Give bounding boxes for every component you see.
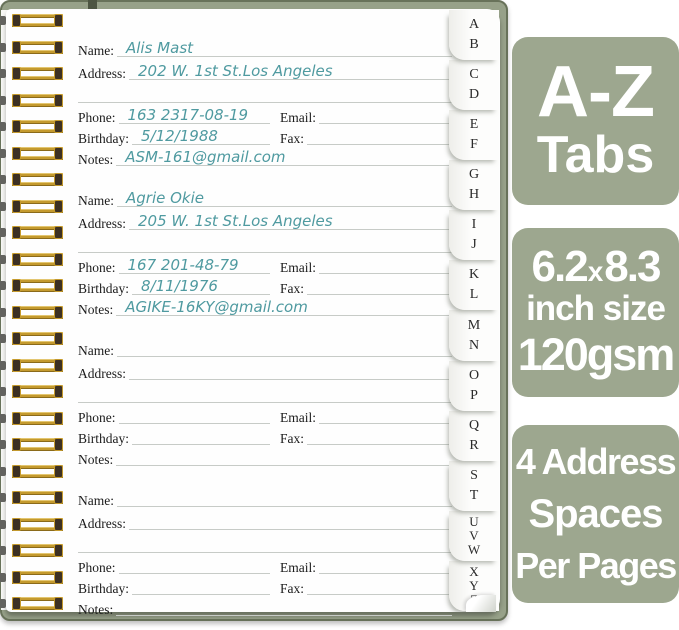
phone-line — [119, 403, 270, 424]
phone-label: Phone: — [78, 261, 119, 275]
binding-coil-end — [0, 175, 6, 184]
name-line — [117, 334, 452, 357]
binding-coil-end — [0, 334, 6, 343]
phone-value: 167 201-48-79 — [128, 257, 239, 274]
binding-coil — [12, 120, 63, 133]
notes-label: Notes: — [78, 453, 116, 467]
notes-row: Notes: AGIKE-16KY@gmail.com — [78, 295, 452, 316]
binding-coil — [12, 173, 63, 186]
separator-line — [78, 79, 452, 103]
tab-letter: U — [469, 515, 478, 528]
tab-letter: B — [469, 38, 478, 52]
badge-text: Spaces — [528, 494, 662, 534]
binding-coil-end — [0, 69, 6, 78]
binding-coil-end — [0, 16, 6, 25]
notes-line: ASM-161@gmail.com — [116, 144, 452, 166]
binding-coil-end — [0, 202, 6, 211]
phone-field: Phone: 167 201-48-79 — [78, 254, 270, 274]
notes-value: AGIKE-16KY@gmail.com — [125, 299, 308, 316]
binding-coil — [12, 226, 63, 239]
tab-letter: T — [470, 489, 479, 503]
tab-letter: F — [470, 138, 478, 152]
birthday-line — [132, 574, 270, 595]
name-row: Name: Agrie Okie — [78, 185, 452, 207]
notes-line — [116, 594, 452, 616]
name-row: Name: — [78, 485, 452, 507]
birthday-label: Birthday: — [78, 282, 132, 296]
binding-coil-end — [0, 361, 6, 370]
spaces-badge: 4 Address Spaces Per Pages — [512, 425, 679, 603]
size-badge: 6.2x8.3 inch size 120gsm — [512, 228, 679, 397]
fax-line — [307, 424, 452, 445]
az-tabs-badge: A-Z Tabs — [512, 37, 679, 205]
notes-row: Notes: ASM-161@gmail.com — [78, 145, 452, 166]
address-entry: Name: Address: Phone: Email: — [78, 335, 452, 485]
email-label: Email: — [280, 561, 319, 575]
fax-field: Fax: — [280, 125, 452, 145]
address-label: Address: — [78, 67, 129, 81]
times-symbol: x — [588, 258, 604, 286]
binding-coil — [12, 412, 63, 425]
binding-coil — [12, 306, 63, 319]
notes-line — [116, 444, 452, 466]
binding-coil-end — [0, 440, 6, 449]
phone-email-row: Phone: 163 2317-08-19 Email: — [78, 104, 452, 124]
fax-line — [307, 274, 452, 295]
fax-label: Fax: — [280, 282, 307, 296]
separator-line — [78, 529, 452, 553]
address-label: Address: — [78, 367, 129, 381]
fax-line — [307, 124, 452, 145]
tab-letter: W — [468, 543, 480, 556]
wire-left-marks — [0, 16, 6, 608]
email-label: Email: — [280, 261, 319, 275]
address-line — [129, 356, 452, 380]
birthday-label: Birthday: — [78, 132, 132, 146]
birthday-fax-row: Birthday: Fax: — [78, 425, 452, 445]
binding-coil-end — [0, 308, 6, 317]
birthday-field: Birthday: — [78, 425, 270, 445]
separator-row — [78, 230, 452, 253]
badge-text: Per Pages — [515, 548, 676, 584]
separator-line — [78, 379, 452, 403]
tab-letter: Q — [469, 419, 479, 433]
name-line — [117, 484, 452, 507]
email-field: Email: — [280, 254, 452, 274]
phone-line: 167 201-48-79 — [119, 253, 270, 274]
entries-area: Name: Alis Mast Address: 202 W. 1st St.L… — [78, 35, 452, 630]
address-row: Address: — [78, 357, 452, 380]
email-line — [319, 403, 452, 424]
badge-text: 4 Address — [516, 444, 675, 480]
name-line: Alis Mast — [117, 34, 452, 57]
separator-line — [78, 229, 452, 253]
email-line — [319, 553, 452, 574]
badge-text: inch size — [526, 291, 665, 328]
separator-row — [78, 80, 452, 103]
binding-coil — [12, 332, 63, 345]
binding-coil — [12, 359, 63, 372]
size-number: 6.2 — [532, 245, 587, 289]
notes-label: Notes: — [78, 603, 116, 617]
wire-binding — [12, 14, 63, 610]
binding-coil-end — [0, 228, 6, 237]
tab-st[interactable]: ST — [449, 461, 499, 511]
phone-field: Phone: 163 2317-08-19 — [78, 104, 270, 124]
binding-coil — [12, 200, 63, 213]
phone-line: 163 2317-08-19 — [119, 103, 270, 124]
fax-label: Fax: — [280, 132, 307, 146]
birthday-fax-row: Birthday: Fax: — [78, 575, 452, 595]
tab-letter: E — [470, 118, 479, 132]
tab-uvw[interactable]: UVW — [449, 511, 499, 561]
binding-coil-end — [0, 546, 6, 555]
tab-letter: D — [469, 88, 479, 102]
binding-coil-end — [0, 387, 6, 396]
fax-label: Fax: — [280, 582, 307, 596]
binding-coil — [12, 14, 63, 27]
binding-coil-end — [0, 467, 6, 476]
tab-letter: P — [470, 389, 478, 403]
email-label: Email: — [280, 111, 319, 125]
address-book-page: Name: Alis Mast Address: 202 W. 1st St.L… — [6, 9, 500, 612]
address-entry: Name: Address: Phone: Email: — [78, 485, 452, 630]
address-row: Address: 202 W. 1st St.Los Angeles — [78, 57, 452, 80]
name-value: Alis Mast — [126, 40, 193, 57]
index-tab-column: AB CD EF GH IJ KL MN OP QR ST UVW XYZ — [449, 10, 499, 611]
tab-letter: G — [469, 168, 479, 182]
binding-coil — [12, 147, 63, 160]
email-field: Email: — [280, 404, 452, 424]
size-number: 8.3 — [604, 245, 659, 289]
binding-coil — [12, 465, 63, 478]
binding-coil-end — [0, 414, 6, 423]
fax-field: Fax: — [280, 575, 452, 595]
phone-value: 163 2317-08-19 — [128, 107, 249, 124]
binding-coil-end — [0, 122, 6, 131]
notes-line: AGIKE-16KY@gmail.com — [116, 294, 452, 316]
address-value: 205 W. 1st St.Los Angeles — [138, 213, 333, 230]
notes-row: Notes: — [78, 595, 452, 616]
binding-coil-end — [0, 255, 6, 264]
phone-email-row: Phone: Email: — [78, 404, 452, 424]
tab-cd[interactable]: CD — [449, 60, 499, 110]
address-entry: Name: Alis Mast Address: 202 W. 1st St.L… — [78, 35, 452, 185]
name-row: Name: Alis Mast — [78, 35, 452, 57]
tab-letter: C — [469, 68, 478, 82]
address-line — [129, 506, 452, 530]
name-value: Agrie Okie — [126, 190, 204, 207]
binding-coil-end — [0, 493, 6, 502]
address-entry: Name: Agrie Okie Address: 205 W. 1st St.… — [78, 185, 452, 335]
fax-field: Fax: — [280, 275, 452, 295]
fax-line — [307, 574, 452, 595]
phone-label: Phone: — [78, 411, 119, 425]
binding-coil — [12, 544, 63, 557]
name-label: Name: — [78, 494, 117, 508]
binding-coil-end — [0, 149, 6, 158]
name-label: Name: — [78, 194, 117, 208]
tab-letter: I — [472, 218, 477, 232]
tab-kl[interactable]: KL — [449, 260, 499, 310]
badge-text: 6.2x8.3 — [532, 245, 660, 289]
binding-coil-end — [0, 520, 6, 529]
binding-coil — [12, 438, 63, 451]
notes-row: Notes: — [78, 445, 452, 466]
birthday-value: 8/11/1976 — [141, 278, 218, 295]
tab-letter: J — [471, 238, 476, 252]
binding-coil-end — [0, 573, 6, 582]
name-row: Name: — [78, 335, 452, 357]
phone-email-row: Phone: 167 201-48-79 Email: — [78, 254, 452, 274]
badge-text: Tabs — [537, 131, 655, 180]
product-image: Name: Alis Mast Address: 202 W. 1st St.L… — [0, 0, 679, 630]
tab-letter: X — [469, 565, 478, 578]
name-label: Name: — [78, 44, 117, 58]
badge-text: A-Z — [537, 62, 654, 123]
email-label: Email: — [280, 411, 319, 425]
tab-letter: N — [469, 339, 479, 353]
email-line — [319, 103, 452, 124]
separator-row — [78, 530, 452, 553]
phone-label: Phone: — [78, 111, 119, 125]
birthday-label: Birthday: — [78, 432, 132, 446]
email-line — [319, 253, 452, 274]
address-line: 202 W. 1st St.Los Angeles — [129, 56, 452, 80]
binding-coil — [12, 491, 63, 504]
tab-letter: Y — [469, 579, 478, 592]
tab-letter: K — [469, 268, 479, 282]
tab-ij[interactable]: IJ — [449, 210, 499, 260]
tab-letter: M — [468, 319, 480, 333]
tab-letter: L — [470, 288, 479, 302]
phone-field: Phone: — [78, 404, 270, 424]
tab-mn[interactable]: MN — [449, 310, 499, 360]
binding-coil-end — [0, 43, 6, 52]
binding-coil — [12, 253, 63, 266]
birthday-line: 8/11/1976 — [132, 274, 270, 295]
tab-op[interactable]: OP — [449, 361, 499, 411]
binding-coil — [12, 279, 63, 292]
email-field: Email: — [280, 554, 452, 574]
notes-label: Notes: — [78, 153, 116, 167]
tab-letter: S — [470, 469, 478, 483]
tab-gh[interactable]: GH — [449, 160, 499, 210]
binding-coil — [12, 41, 63, 54]
binding-coil-end — [0, 281, 6, 290]
binding-coil — [12, 67, 63, 80]
separator-row — [78, 380, 452, 403]
binding-coil-end — [0, 96, 6, 105]
email-field: Email: — [280, 104, 452, 124]
birthday-value: 5/12/1988 — [141, 128, 218, 145]
birthday-line — [132, 424, 270, 445]
tab-letter: H — [469, 188, 479, 202]
tab-ef[interactable]: EF — [449, 110, 499, 160]
binding-coil — [12, 385, 63, 398]
birthday-fax-row: Birthday: 5/12/1988 Fax: — [78, 125, 452, 145]
birthday-line: 5/12/1988 — [132, 124, 270, 145]
tab-letter: O — [469, 369, 479, 383]
binding-coil — [12, 94, 63, 107]
birthday-field: Birthday: 5/12/1988 — [78, 125, 270, 145]
name-label: Name: — [78, 344, 117, 358]
address-row: Address: — [78, 507, 452, 530]
notes-value: ASM-161@gmail.com — [125, 149, 285, 166]
birthday-label: Birthday: — [78, 582, 132, 596]
address-value: 202 W. 1st St.Los Angeles — [138, 63, 333, 80]
birthday-field: Birthday: — [78, 575, 270, 595]
tab-letter: R — [469, 439, 478, 453]
address-label: Address: — [78, 517, 129, 531]
fax-label: Fax: — [280, 432, 307, 446]
tab-letter: V — [469, 529, 478, 542]
address-line: 205 W. 1st St.Los Angeles — [129, 206, 452, 230]
phone-email-row: Phone: Email: — [78, 554, 452, 574]
binding-coil — [12, 518, 63, 531]
binding-coil-end — [0, 599, 6, 608]
birthday-field: Birthday: 8/11/1976 — [78, 275, 270, 295]
name-line: Agrie Okie — [117, 184, 452, 207]
tab-letter: A — [469, 18, 479, 32]
binding-coil — [12, 597, 63, 610]
address-row: Address: 205 W. 1st St.Los Angeles — [78, 207, 452, 230]
notes-label: Notes: — [78, 303, 116, 317]
phone-label: Phone: — [78, 561, 119, 575]
binding-coil — [12, 571, 63, 584]
phone-line — [119, 553, 270, 574]
tab-ab[interactable]: AB — [449, 10, 499, 60]
page-curl — [466, 595, 496, 612]
address-label: Address: — [78, 217, 129, 231]
birthday-fax-row: Birthday: 8/11/1976 Fax: — [78, 275, 452, 295]
tab-qr[interactable]: QR — [449, 411, 499, 461]
badge-text: 120gsm — [518, 330, 674, 380]
fax-field: Fax: — [280, 425, 452, 445]
phone-field: Phone: — [78, 554, 270, 574]
